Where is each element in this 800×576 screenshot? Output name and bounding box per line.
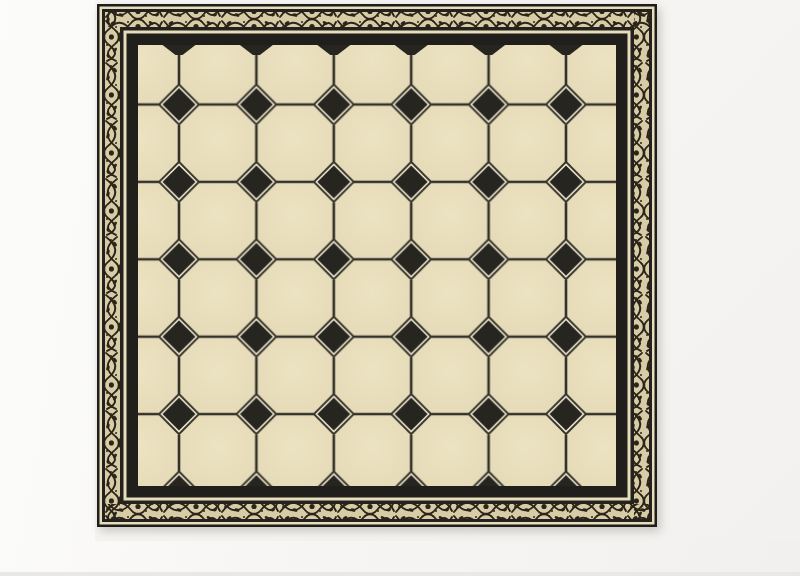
ornament-border-right (634, 12, 649, 519)
image-bottom-edge (0, 572, 800, 576)
ornament-border-left (105, 12, 120, 519)
ornament-border-bottom (105, 504, 649, 519)
framed-tile-panel (97, 4, 657, 527)
ornament-border-top (105, 12, 649, 27)
tile-field (138, 45, 616, 486)
octagon-dot-pattern (138, 45, 616, 486)
